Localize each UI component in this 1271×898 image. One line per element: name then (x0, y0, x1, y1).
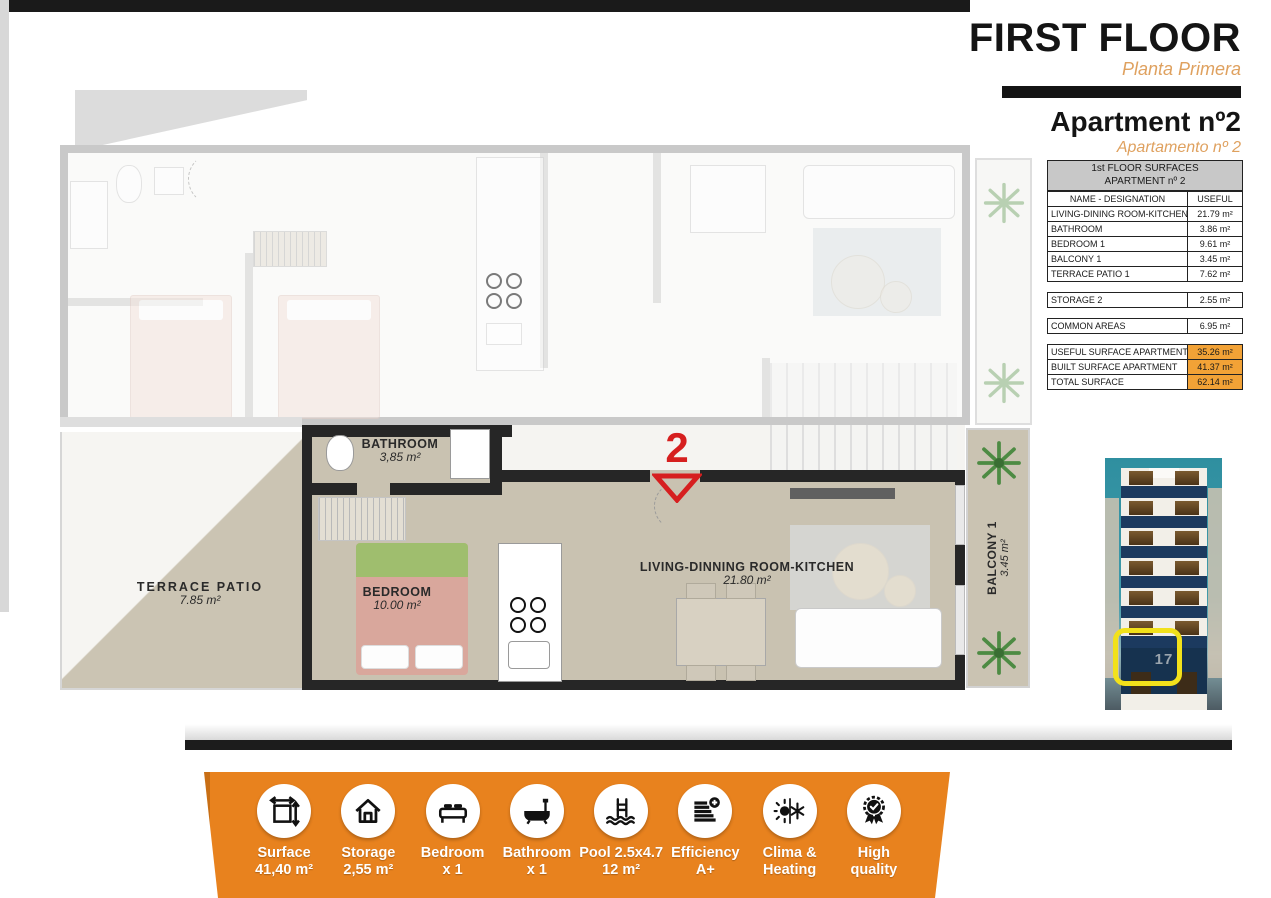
feature-label-line1: Pool 2.5x4.7 (579, 845, 663, 862)
terrace-patio: TERRACE PATIO 7.85 m² (60, 432, 302, 690)
surfaces-table-title-line2: APARTMENT nº 2 (1048, 176, 1242, 189)
sofa (795, 608, 942, 668)
row-value: 9.61 m² (1187, 237, 1242, 251)
surfaces-table-common: COMMON AREAS 6.95 m² (1047, 318, 1243, 334)
feature-label-line2: x 1 (495, 862, 579, 879)
features-banner: Surface41,40 m² Storage2,55 m² (198, 772, 950, 898)
dining-table (690, 165, 766, 233)
balcony-1: BALCONY 1 3.45 m² (966, 428, 1030, 688)
wardrobe (253, 231, 327, 267)
neighbor-building (1208, 488, 1222, 678)
climate-icon (763, 784, 817, 838)
dining-table (676, 598, 766, 666)
window (955, 485, 965, 545)
row-name: TERRACE PATIO 1 (1048, 269, 1187, 279)
row-name: BUILT SURFACE APARTMENT (1048, 362, 1187, 372)
floorplan-faded-apartments (60, 145, 970, 425)
building-render: 17 (1105, 458, 1222, 710)
surfaces-table-title: 1st FLOOR SURFACES APARTMENT nº 2 (1048, 161, 1242, 191)
row-value: 6.95 m² (1187, 319, 1242, 333)
table-row: BATHROOM 3.86 m² (1048, 221, 1242, 236)
feature-label-line1: Surface (242, 845, 326, 862)
feature-bathroom: Bathroomx 1 (495, 784, 579, 878)
feature-label-line1: Bedroom (411, 845, 495, 862)
table-row: LIVING-DINING ROOM-KITCHEN 21.79 m² (1048, 206, 1242, 221)
table-row: TERRACE PATIO 1 7.62 m² (1048, 266, 1242, 281)
feature-bedroom: Bedroomx 1 (411, 784, 495, 878)
room-name: LIVING-DINNING ROOM-KITCHEN (582, 560, 912, 574)
col-useful-header: USEFUL (1187, 192, 1242, 206)
balcony-label: BALCONY 1 3.45 m² (985, 521, 1011, 595)
wardrobe (318, 497, 406, 541)
row-value: 3.45 m² (1187, 252, 1242, 266)
bedroom-label: BEDROOM 10.00 m² (312, 585, 482, 613)
row-value: 2.55 m² (1187, 293, 1242, 307)
feature-efficiency: EfficiencyA+ (663, 784, 747, 878)
row-name: BATHROOM (1048, 224, 1187, 234)
row-name: BALCONY 1 (1048, 254, 1187, 264)
row-name: USEFUL SURFACE APARTMENT (1048, 347, 1187, 357)
feature-surface: Surface41,40 m² (242, 784, 326, 878)
room-area: 10.00 m² (312, 599, 482, 613)
bathtub-icon (510, 784, 564, 838)
corner-gray-band (75, 90, 307, 146)
side-table (880, 281, 912, 313)
row-value: 35.26 m² (1187, 345, 1242, 359)
chair (686, 665, 716, 681)
feature-label-line1: Storage (326, 845, 410, 862)
col-name-header: NAME - DESIGNATION (1048, 194, 1187, 204)
sink (154, 167, 184, 195)
left-gray-strip (0, 0, 9, 612)
building-floor (1121, 588, 1207, 618)
feature-label-line2: 12 m² (579, 862, 663, 879)
title-block: FIRST FLOOR Planta Primera Apartment nº2… (821, 18, 1241, 157)
room-name: BALCONY 1 (985, 521, 999, 595)
plant-icon (981, 180, 1027, 226)
feature-label-line2: 2,55 m² (326, 862, 410, 879)
wall (762, 358, 770, 417)
feature-label-line1: High (832, 845, 916, 862)
surfaces-tables: 1st FLOOR SURFACES APARTMENT nº 2 NAME -… (1047, 160, 1243, 390)
room-area: 7.85 m² (90, 594, 310, 608)
page-title: FIRST FLOOR (821, 18, 1241, 58)
apartment-highlight-box (1113, 628, 1182, 686)
sideboard (790, 488, 895, 499)
table-row: STORAGE 2 2.55 m² (1048, 293, 1242, 307)
feature-label-line1: Bathroom (495, 845, 579, 862)
table-row: BUILT SURFACE APARTMENT 41.37 m² (1048, 359, 1242, 374)
common-hall (502, 425, 965, 470)
row-name: BEDROOM 1 (1048, 239, 1187, 249)
coffee-table (831, 255, 885, 309)
terrace-wall-stub (60, 417, 302, 427)
feature-pool: Pool 2.5x4.712 m² (579, 784, 663, 878)
room-area: 3,85 m² (340, 451, 460, 465)
balcony-faded (975, 158, 1032, 425)
row-name: TOTAL SURFACE (1048, 377, 1187, 387)
features-row: Surface41,40 m² Storage2,55 m² (198, 772, 950, 878)
terrace-label: TERRACE PATIO 7.85 m² (90, 580, 310, 608)
wall (390, 483, 502, 495)
row-value: 21.79 m² (1187, 207, 1242, 221)
shower (70, 181, 108, 249)
quality-icon (847, 784, 901, 838)
stove (486, 273, 520, 307)
plant-icon (974, 628, 1024, 678)
table-header-row: NAME - DESIGNATION USEFUL (1048, 191, 1242, 206)
room-name: BATHROOM (340, 437, 460, 451)
row-value: 41.37 m² (1187, 360, 1242, 374)
plant-icon (981, 360, 1027, 406)
row-value: 3.86 m² (1187, 222, 1242, 236)
feature-label-line2: x 1 (411, 862, 495, 879)
wall (700, 470, 965, 482)
table-row: USEFUL SURFACE APARTMENT 35.26 m² (1048, 345, 1242, 359)
page-subtitle: Planta Primera (821, 59, 1241, 80)
room-area: 21.80 m² (582, 574, 912, 588)
apartment-2-plan: 2 BATHROOM 3,85 m² BEDROOM 10.00 m² (302, 425, 965, 690)
stairs-lower (770, 425, 957, 470)
room-name: BEDROOM (312, 585, 482, 599)
divider-gradient (185, 724, 1232, 740)
surfaces-table-storage: STORAGE 2 2.55 m² (1047, 292, 1243, 308)
bed (130, 295, 232, 419)
building-floor (1121, 558, 1207, 588)
unit-number-marker: 2 (652, 427, 702, 469)
feature-label-line2: A+ (663, 862, 747, 879)
building-floor (1121, 468, 1207, 498)
kitchen-sink (508, 641, 550, 669)
wall (245, 253, 253, 417)
row-name: LIVING-DINING ROOM-KITCHEN (1048, 209, 1187, 219)
title-divider (1002, 86, 1241, 98)
feature-label-line2: quality (832, 862, 916, 879)
pool-icon (594, 784, 648, 838)
wall (302, 483, 357, 495)
surfaces-table-title-line1: 1st FLOOR SURFACES (1048, 163, 1242, 176)
door-arc (654, 482, 702, 530)
feature-climate: Clima &Heating (748, 784, 832, 878)
table-row: BALCONY 1 3.45 m² (1048, 251, 1242, 266)
chair (726, 665, 756, 681)
row-name: COMMON AREAS (1048, 321, 1187, 331)
stairs (770, 363, 957, 417)
table-row: BEDROOM 1 9.61 m² (1048, 236, 1242, 251)
surfaces-table-main: 1st FLOOR SURFACES APARTMENT nº 2 NAME -… (1047, 160, 1243, 282)
window (955, 585, 965, 655)
sofa (803, 165, 955, 219)
feature-quality: Highquality (832, 784, 916, 878)
feature-label-line1: Efficiency (663, 845, 747, 862)
row-value: 62.14 m² (1187, 375, 1242, 389)
door-arc (188, 153, 240, 205)
wall (653, 153, 661, 303)
bed (278, 295, 380, 419)
table-row: TOTAL SURFACE 62.14 m² (1048, 374, 1242, 389)
house-icon (341, 784, 395, 838)
feature-label-line2: Heating (748, 862, 832, 879)
room-area: 3.45 m² (999, 521, 1011, 595)
dimensions-icon (257, 784, 311, 838)
surfaces-table-totals: USEFUL SURFACE APARTMENT 35.26 m² BUILT … (1047, 344, 1243, 390)
wall (502, 470, 650, 482)
feature-storage: Storage2,55 m² (326, 784, 410, 878)
plant-icon (974, 438, 1024, 488)
building-floor (1121, 498, 1207, 528)
feature-label-line1: Clima & (748, 845, 832, 862)
table-row: COMMON AREAS 6.95 m² (1048, 319, 1242, 333)
stove (510, 597, 544, 631)
brochure-page: FIRST FLOOR Planta Primera Apartment nº2… (0, 0, 1271, 898)
row-value: 7.62 m² (1187, 267, 1242, 281)
row-name: STORAGE 2 (1048, 295, 1187, 305)
top-black-bar (0, 0, 970, 12)
divider-black-bar (185, 740, 1232, 750)
room-name: TERRACE PATIO (90, 580, 310, 594)
kitchen-sink (486, 323, 522, 345)
feature-label-line2: 41,40 m² (242, 862, 326, 879)
living-label: LIVING-DINNING ROOM-KITCHEN 21.80 m² (582, 560, 912, 588)
apartment-title: Apartment nº2 (821, 106, 1241, 138)
toilet (116, 165, 142, 203)
efficiency-icon (678, 784, 732, 838)
bathroom-label: BATHROOM 3,85 m² (340, 437, 460, 465)
building-floor (1121, 528, 1207, 558)
bed-icon (426, 784, 480, 838)
